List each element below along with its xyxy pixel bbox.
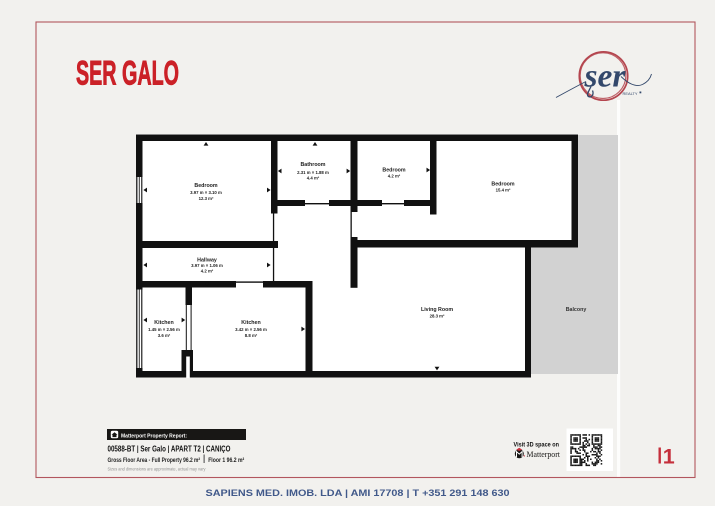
svg-text:4.2 m²: 4.2 m² <box>388 174 401 179</box>
svg-text:4.4 m²: 4.4 m² <box>307 176 320 181</box>
svg-text:Living Room: Living Room <box>421 307 453 313</box>
svg-text:1: 1 <box>663 445 675 469</box>
svg-text:SER GALO: SER GALO <box>76 55 179 93</box>
svg-text:00588-BT | Ser Galo | APART T2: 00588-BT | Ser Galo | APART T2 | CANIÇO <box>108 444 231 454</box>
svg-text:Kitchen: Kitchen <box>241 320 260 326</box>
svg-text:4.2 m²: 4.2 m² <box>201 268 214 273</box>
svg-text:3.97 m × 3.10 m: 3.97 m × 3.10 m <box>190 190 222 195</box>
svg-text:Floor 1 96.2 m²: Floor 1 96.2 m² <box>208 457 245 464</box>
svg-text:3.42 m × 2.56 m: 3.42 m × 2.56 m <box>235 327 267 332</box>
svg-text:Matterport: Matterport <box>527 450 561 459</box>
svg-text:Bedroom: Bedroom <box>194 183 218 189</box>
svg-text:3.97 m × 1.06 m: 3.97 m × 1.06 m <box>191 263 223 268</box>
svg-text:Kitchen: Kitchen <box>154 320 173 326</box>
svg-text:8.8 m²: 8.8 m² <box>245 333 258 338</box>
svg-text:Bathroom: Bathroom <box>300 162 325 168</box>
svg-text:SAPIENS MED. IMOB. LDA | AMI 1: SAPIENS MED. IMOB. LDA | AMI 17708 | T +… <box>206 488 510 498</box>
svg-text:3.6 m²: 3.6 m² <box>158 333 171 338</box>
svg-text:Balcony: Balcony <box>566 307 587 313</box>
svg-text:15.4 m²: 15.4 m² <box>496 188 511 193</box>
svg-text:Visit 3D space on: Visit 3D space on <box>514 442 560 449</box>
svg-text:Matterport Property Report:: Matterport Property Report: <box>121 433 187 439</box>
svg-text:REALTY: REALTY <box>623 92 638 96</box>
svg-text:28.3 m²: 28.3 m² <box>430 314 445 319</box>
svg-text:Bedroom: Bedroom <box>382 168 406 174</box>
svg-text:Bedroom: Bedroom <box>491 181 515 187</box>
svg-text:12.3 m²: 12.3 m² <box>199 196 214 201</box>
svg-text:Gross Floor Area - Full Proper: Gross Floor Area - Full Property 96.2 m² <box>108 457 201 464</box>
svg-text:Sizes and dimensions are appro: Sizes and dimensions are approximate, ac… <box>108 466 207 471</box>
svg-text:2.31 m × 1.88 m: 2.31 m × 1.88 m <box>297 170 329 175</box>
svg-text:1.45 m × 2.56 m: 1.45 m × 2.56 m <box>148 327 180 332</box>
